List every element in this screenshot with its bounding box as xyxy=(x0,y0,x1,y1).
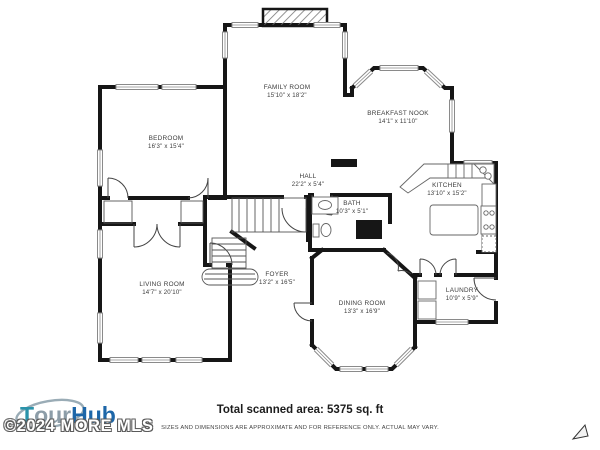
room-label-living-room: LIVING ROOM14'7" x 20'10" xyxy=(139,281,184,296)
dryer xyxy=(418,301,436,319)
room-label-foyer: FOYER13'2" x 16'5" xyxy=(259,271,295,286)
staircase xyxy=(212,198,306,268)
floorplan-drawing xyxy=(0,0,600,450)
tourhub-logo: TourHub ©2024 MORE MLS xyxy=(4,396,154,448)
bath-fixtures xyxy=(312,197,338,237)
room-label-dining-room: DINING ROOM13'3" x 16'9" xyxy=(339,300,386,315)
dishwasher xyxy=(482,236,496,252)
shower xyxy=(356,220,382,239)
room-label-family-room: FAMILY ROOM15'10" x 18'2" xyxy=(264,84,311,99)
closets xyxy=(104,201,203,223)
copyright-watermark: ©2024 MORE MLS xyxy=(4,417,153,436)
kitchen-island xyxy=(430,205,478,235)
room-label-bedroom: BEDROOM16'3" x 15'4" xyxy=(148,135,184,150)
floorplan-page: FAMILY ROOM15'10" x 18'2" BREAKFAST NOOK… xyxy=(0,0,600,450)
toilet-tank xyxy=(313,224,319,237)
room-label-breakfast-nook: BREAKFAST NOOK14'1" x 11'10" xyxy=(367,110,429,125)
room-label-laundry: LAUNDRY10'9" x 5'9" xyxy=(446,287,478,302)
laundry-fixtures xyxy=(418,281,436,319)
room-label-bath: BATH10'3" x 5'1" xyxy=(336,200,368,215)
kitchen-fixtures xyxy=(400,164,496,252)
stove xyxy=(481,206,496,234)
washer xyxy=(418,281,436,299)
toilet xyxy=(321,224,331,237)
range xyxy=(448,164,472,178)
room-label-kitchen: KITCHEN13'10" x 15'2" xyxy=(427,182,467,197)
sink xyxy=(319,201,332,210)
walls xyxy=(100,25,496,369)
room-label-hall: HALL22'2" x 5'4" xyxy=(292,173,324,188)
